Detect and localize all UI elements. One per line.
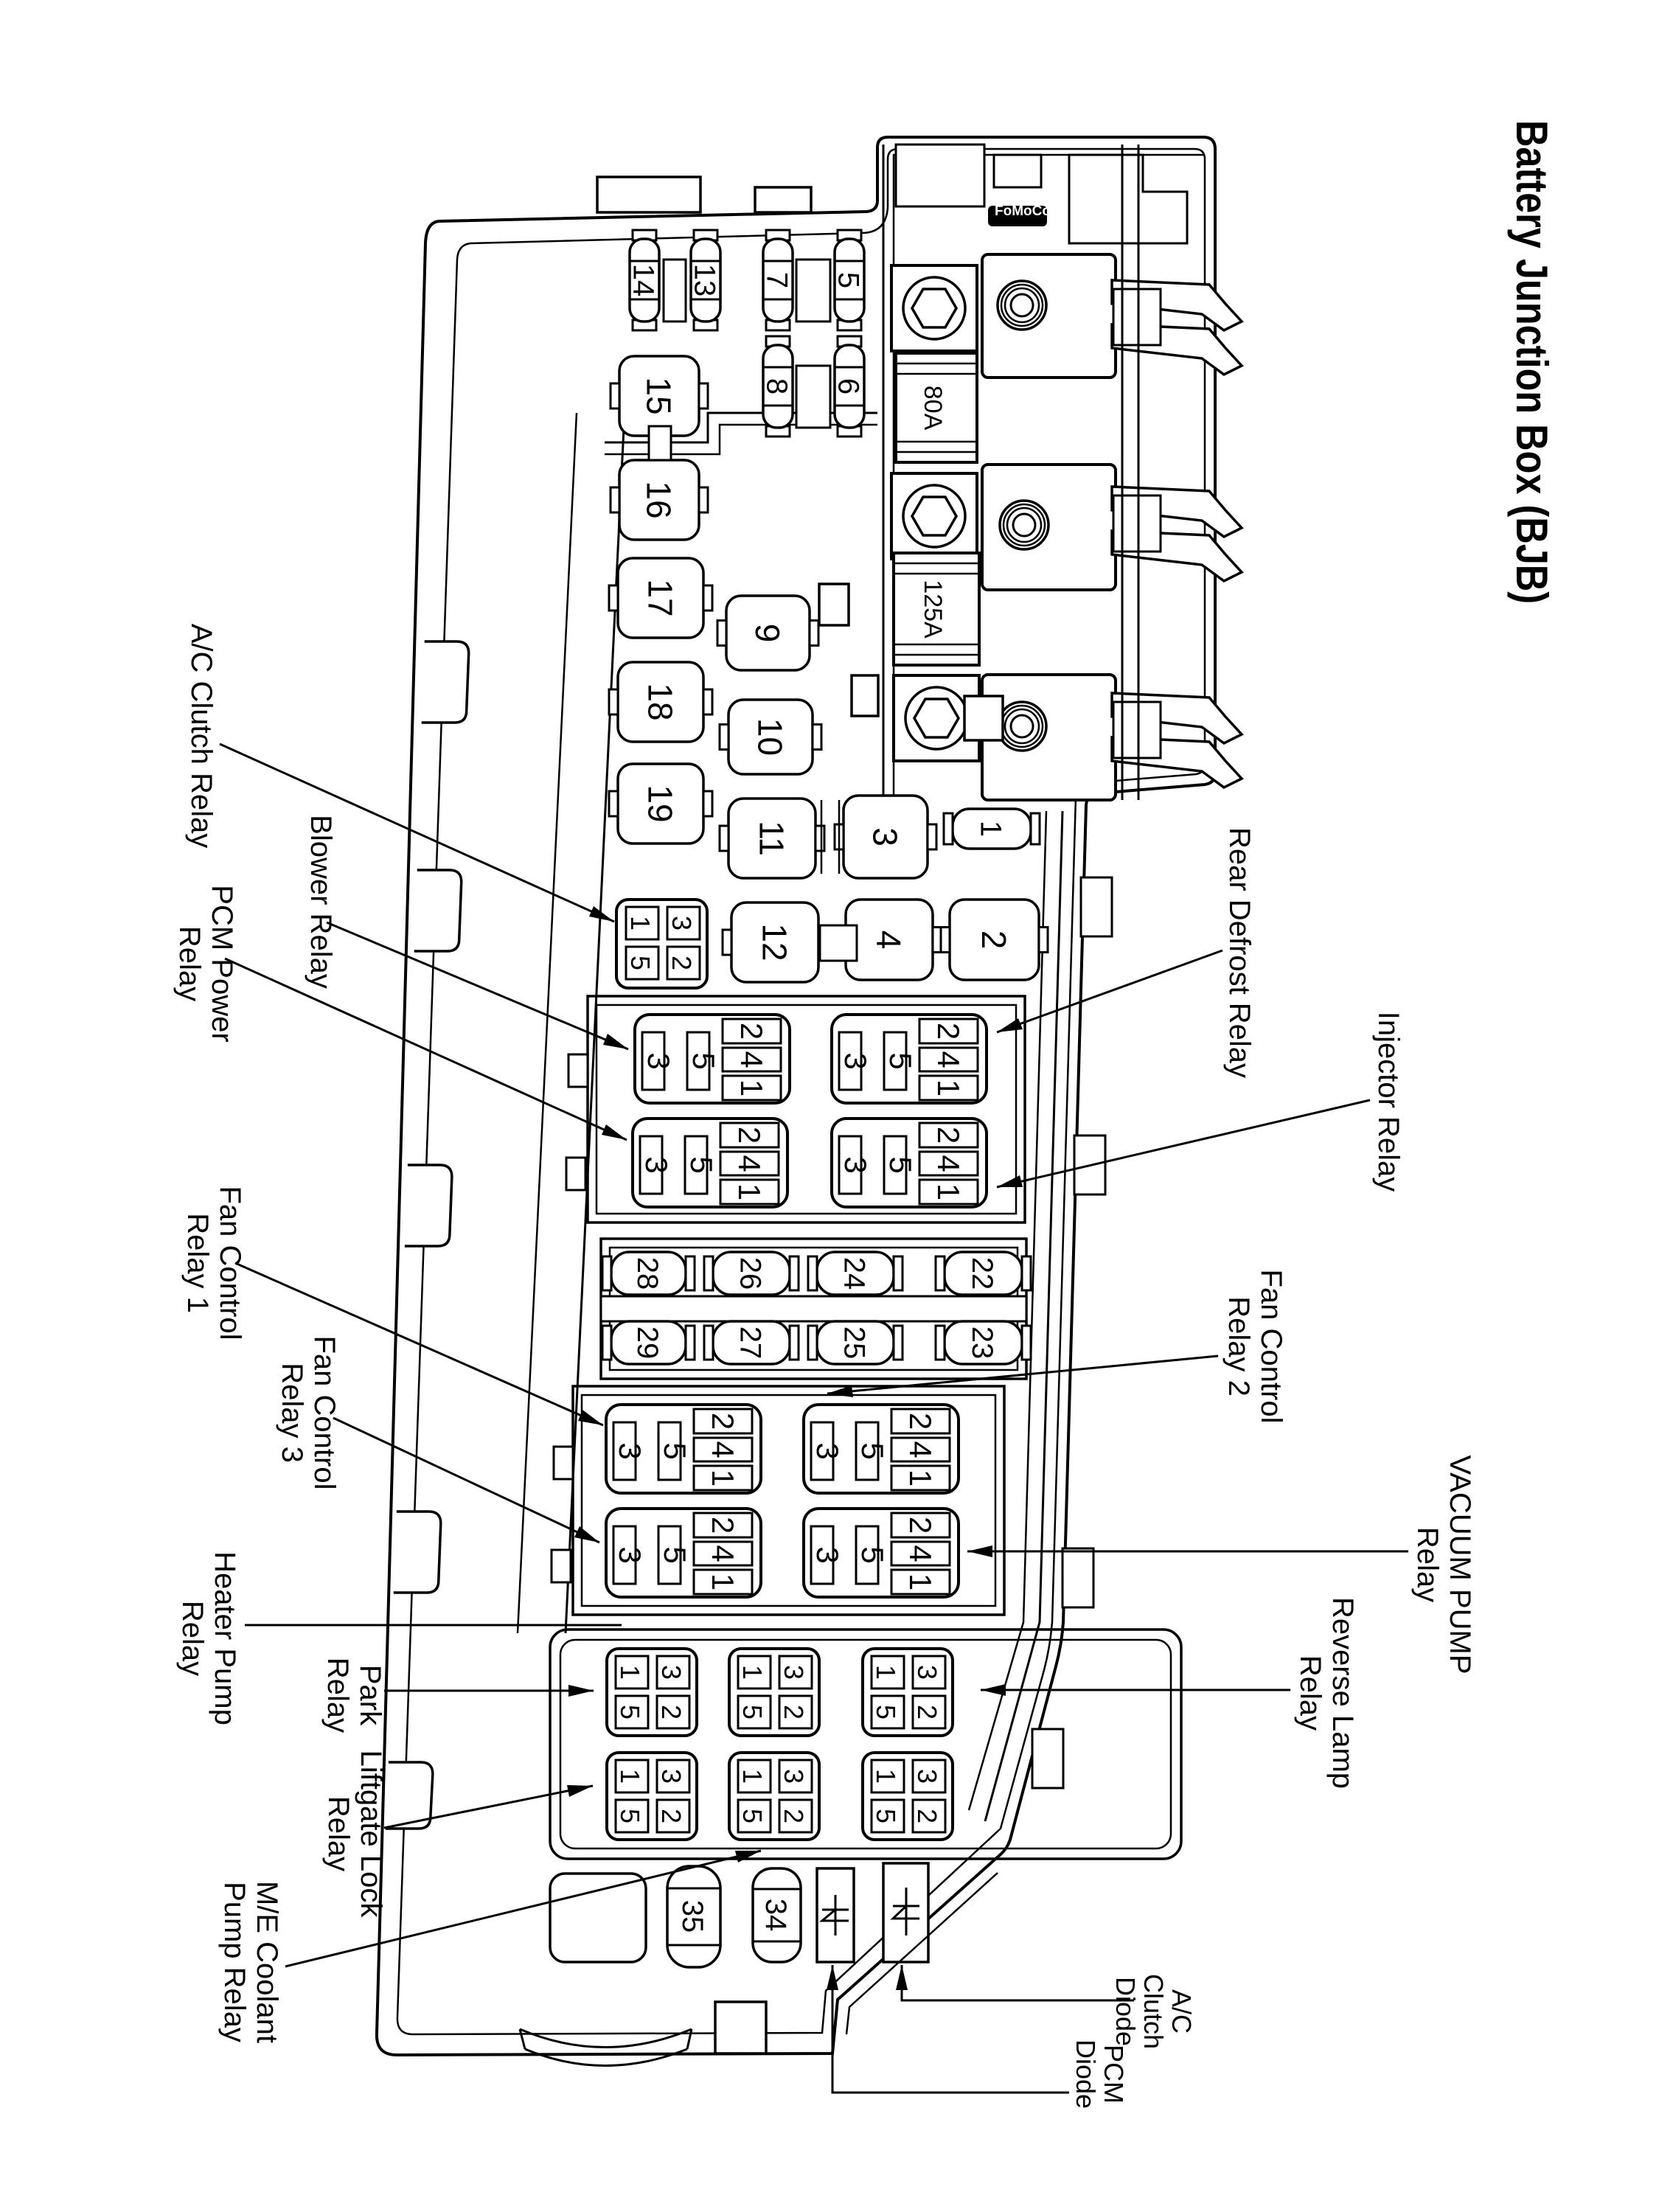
- svg-text:1: 1: [903, 1470, 938, 1486]
- svg-text:14: 14: [627, 264, 660, 297]
- svg-text:1: 1: [737, 1769, 768, 1784]
- svg-text:5: 5: [625, 956, 655, 970]
- svg-text:5: 5: [615, 1705, 645, 1719]
- svg-text:3: 3: [866, 827, 904, 846]
- svg-text:2: 2: [706, 1413, 740, 1430]
- svg-text:35: 35: [676, 1900, 709, 1933]
- svg-text:4: 4: [734, 1051, 769, 1068]
- svg-text:Blower Relay: Blower Relay: [305, 815, 337, 989]
- svg-text:29: 29: [631, 1326, 664, 1360]
- svg-text:Relay: Relay: [1411, 1527, 1444, 1602]
- svg-text:3: 3: [779, 1665, 809, 1680]
- svg-text:5: 5: [832, 272, 865, 288]
- svg-text:25: 25: [838, 1326, 871, 1360]
- svg-text:1: 1: [706, 1573, 740, 1590]
- svg-text:3: 3: [641, 1052, 676, 1069]
- svg-text:26: 26: [734, 1257, 767, 1290]
- svg-text:17: 17: [641, 579, 679, 616]
- svg-text:2: 2: [656, 1705, 686, 1719]
- svg-text:VACUUM PUMP: VACUUM PUMP: [1444, 1455, 1476, 1674]
- svg-text:3: 3: [838, 1052, 873, 1069]
- svg-text:3: 3: [779, 1769, 809, 1784]
- svg-text:Heater Pump: Heater Pump: [209, 1551, 241, 1725]
- svg-text:Fan Control: Fan Control: [308, 1336, 341, 1490]
- svg-text:4: 4: [903, 1545, 938, 1562]
- svg-text:34: 34: [759, 1899, 792, 1932]
- svg-text:5: 5: [855, 1442, 890, 1459]
- svg-text:8: 8: [761, 378, 793, 394]
- svg-text:3: 3: [838, 1156, 873, 1173]
- svg-text:4: 4: [706, 1545, 740, 1562]
- svg-text:5: 5: [658, 1546, 692, 1563]
- svg-text:2: 2: [903, 1517, 938, 1534]
- svg-text:3: 3: [613, 1546, 647, 1563]
- svg-text:Diode: Diode: [1110, 1977, 1141, 2046]
- svg-text:Fan Control: Fan Control: [1255, 1270, 1287, 1424]
- svg-text:Battery Junction Box (BJB): Battery Junction Box (BJB): [1507, 120, 1557, 604]
- svg-text:Relay: Relay: [1294, 1655, 1326, 1731]
- svg-text:3: 3: [656, 1769, 686, 1784]
- svg-text:13: 13: [689, 264, 721, 297]
- svg-text:Relay 2: Relay 2: [1222, 1296, 1255, 1397]
- svg-text:Relay: Relay: [322, 1796, 355, 1871]
- svg-text:15: 15: [639, 377, 678, 414]
- svg-text:2: 2: [779, 1705, 809, 1719]
- svg-text:24: 24: [838, 1257, 871, 1290]
- svg-text:FoMoCo: FoMoCo: [995, 204, 1051, 219]
- svg-text:1: 1: [931, 1183, 966, 1200]
- svg-text:1: 1: [903, 1573, 938, 1590]
- svg-text:4: 4: [931, 1155, 966, 1172]
- svg-text:1: 1: [732, 1183, 767, 1200]
- svg-text:2: 2: [732, 1127, 767, 1144]
- svg-text:1: 1: [975, 821, 1007, 837]
- svg-text:7: 7: [761, 272, 793, 288]
- svg-text:2: 2: [706, 1517, 740, 1534]
- svg-text:Park: Park: [354, 1665, 386, 1726]
- svg-text:4: 4: [903, 1441, 938, 1458]
- svg-text:2: 2: [931, 1127, 966, 1144]
- svg-text:18: 18: [641, 683, 679, 720]
- svg-text:1: 1: [734, 1079, 769, 1096]
- svg-text:3: 3: [912, 1769, 942, 1784]
- svg-text:2: 2: [903, 1413, 938, 1430]
- svg-text:PCM: PCM: [1099, 2045, 1129, 2104]
- svg-text:12: 12: [755, 923, 793, 961]
- svg-text:2: 2: [779, 1809, 809, 1823]
- svg-text:Liftgate Lock: Liftgate Lock: [355, 1750, 387, 1919]
- svg-text:1: 1: [871, 1665, 901, 1680]
- svg-text:19: 19: [641, 785, 679, 822]
- svg-text:1: 1: [737, 1665, 768, 1680]
- svg-text:2: 2: [912, 1809, 942, 1823]
- svg-text:M/E Coolant: M/E Coolant: [251, 1881, 283, 2043]
- svg-text:Clutch: Clutch: [1138, 1974, 1169, 2049]
- svg-text:1: 1: [931, 1079, 966, 1096]
- svg-text:5: 5: [871, 1705, 901, 1719]
- svg-text:5: 5: [615, 1809, 645, 1823]
- svg-text:Rear Defrost Relay: Rear Defrost Relay: [1223, 827, 1256, 1078]
- svg-text:5: 5: [737, 1809, 768, 1823]
- svg-text:5: 5: [883, 1156, 918, 1173]
- svg-text:2: 2: [975, 931, 1013, 950]
- svg-text:3: 3: [912, 1665, 942, 1680]
- svg-text:3: 3: [810, 1442, 845, 1459]
- svg-text:11: 11: [752, 821, 790, 856]
- svg-text:2: 2: [931, 1023, 966, 1040]
- svg-text:9: 9: [748, 624, 787, 643]
- svg-text:5: 5: [883, 1052, 918, 1069]
- svg-text:1: 1: [615, 1769, 645, 1784]
- svg-text:Injector Relay: Injector Relay: [1372, 1012, 1405, 1192]
- svg-text:27: 27: [734, 1326, 767, 1360]
- svg-text:Relay 3: Relay 3: [276, 1363, 308, 1463]
- svg-text:5: 5: [737, 1705, 768, 1719]
- svg-text:PCM Power: PCM Power: [206, 885, 238, 1042]
- svg-text:5: 5: [871, 1809, 901, 1823]
- svg-text:16: 16: [639, 481, 678, 518]
- svg-text:3: 3: [613, 1442, 647, 1459]
- svg-text:5: 5: [855, 1546, 890, 1563]
- svg-text:3: 3: [639, 1156, 674, 1173]
- svg-text:Relay: Relay: [173, 926, 206, 1001]
- svg-text:80A: 80A: [919, 386, 947, 431]
- svg-text:23: 23: [966, 1326, 998, 1360]
- svg-text:3: 3: [656, 1665, 686, 1680]
- svg-text:2: 2: [656, 1809, 686, 1823]
- svg-text:A/C: A/C: [1166, 1989, 1197, 2034]
- svg-text:A/C Clutch Relay: A/C Clutch Relay: [185, 624, 218, 849]
- svg-text:5: 5: [684, 1156, 719, 1173]
- svg-text:Relay: Relay: [176, 1601, 209, 1676]
- svg-text:Fan Control: Fan Control: [214, 1186, 246, 1340]
- svg-text:2: 2: [734, 1023, 769, 1040]
- svg-text:1: 1: [706, 1470, 740, 1486]
- svg-text:Reverse Lamp: Reverse Lamp: [1326, 1597, 1359, 1789]
- svg-text:22: 22: [966, 1257, 998, 1290]
- svg-text:4: 4: [732, 1155, 767, 1172]
- svg-text:2: 2: [912, 1705, 942, 1719]
- svg-text:1: 1: [871, 1769, 901, 1784]
- svg-text:28: 28: [631, 1257, 664, 1290]
- svg-text:6: 6: [832, 378, 865, 394]
- svg-text:1: 1: [615, 1665, 645, 1680]
- svg-text:Relay 1: Relay 1: [181, 1213, 214, 1313]
- svg-text:10: 10: [751, 718, 789, 756]
- svg-text:Pump Relay: Pump Relay: [218, 1882, 251, 2042]
- svg-text:125A: 125A: [919, 580, 947, 639]
- svg-text:2: 2: [667, 956, 697, 970]
- svg-text:Diode: Diode: [1071, 2039, 1101, 2109]
- svg-text:4: 4: [869, 931, 908, 950]
- svg-text:1: 1: [625, 916, 655, 931]
- svg-text:3: 3: [810, 1546, 845, 1563]
- svg-text:4: 4: [706, 1441, 740, 1458]
- svg-text:3: 3: [667, 916, 697, 931]
- svg-text:Relay: Relay: [321, 1658, 354, 1733]
- svg-text:5: 5: [686, 1052, 721, 1069]
- svg-text:5: 5: [658, 1442, 692, 1459]
- svg-text:4: 4: [931, 1051, 966, 1068]
